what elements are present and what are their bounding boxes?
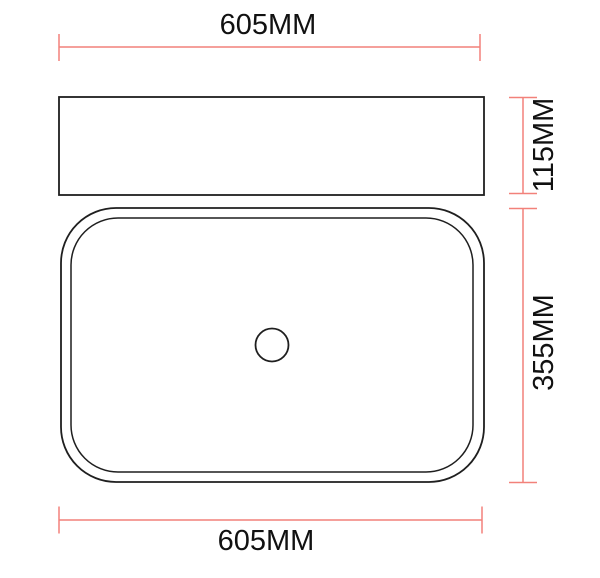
- side-height-dimension: 115MM: [509, 98, 560, 194]
- top-width-dimension-label: 605MM: [220, 9, 317, 41]
- basin-dimension-diagram: 605MM 115MM 355MM: [0, 0, 600, 578]
- basin-top-view: [61, 208, 484, 482]
- bottom-width-dimension-label: 605MM: [218, 525, 315, 557]
- basin-outer-rim: [61, 208, 484, 482]
- basin-depth-dimension: 355MM: [509, 209, 560, 483]
- basin-side-view-outline: [59, 97, 484, 195]
- basin-inner-rim: [71, 218, 473, 472]
- drain-hole: [256, 329, 289, 362]
- side-height-dimension-label: 115MM: [528, 98, 560, 193]
- basin-depth-dimension-label: 355MM: [528, 294, 560, 391]
- bottom-width-dimension: 605MM: [59, 507, 482, 558]
- top-width-dimension: 605MM: [59, 9, 480, 61]
- basin-technical-drawing: 605MM 115MM 355MM: [0, 0, 600, 578]
